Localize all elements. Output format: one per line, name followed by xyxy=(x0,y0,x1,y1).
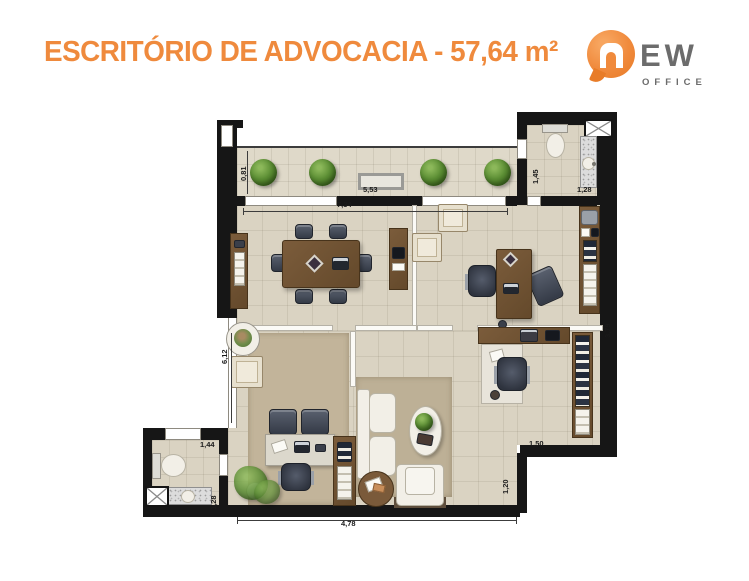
window-balcony-left xyxy=(245,196,337,206)
wall-balcony-a xyxy=(237,196,245,206)
window-left-niche xyxy=(221,125,233,147)
cabinet-screen xyxy=(392,247,405,259)
guest-chair xyxy=(301,409,329,435)
toilet-tank xyxy=(152,453,161,479)
balcony-plant-1 xyxy=(250,159,277,186)
cabinet-box xyxy=(581,228,590,237)
sideboard-item xyxy=(234,240,245,248)
dim-balcony-width: 5,53 xyxy=(363,186,378,194)
sofa-cushion xyxy=(369,393,396,433)
guest-chair xyxy=(269,409,297,435)
wall-wc2-right-a xyxy=(219,428,228,454)
dim-tick xyxy=(237,517,238,524)
armchair-beige xyxy=(438,204,468,232)
wall-right-step xyxy=(517,453,527,513)
phone xyxy=(315,444,326,452)
wall-wc-left-b xyxy=(517,159,527,205)
conference-chair xyxy=(329,289,347,304)
dim-left-height: 6,12 xyxy=(221,349,229,364)
dim-tick xyxy=(243,208,244,215)
door-wc-top-exit xyxy=(527,196,541,206)
dim-line-734 xyxy=(243,211,508,212)
dim-right-height: 3,79 xyxy=(604,323,612,338)
cabinet-files-dark xyxy=(583,240,597,262)
conference-chair xyxy=(295,224,313,239)
desk-monitor xyxy=(545,330,560,341)
cabinet-files-white xyxy=(583,264,597,306)
wall-wc2-right-b xyxy=(219,476,228,517)
lounge-armchair-seat xyxy=(405,467,435,495)
toilet-bowl xyxy=(546,133,565,158)
logo-ew-text: EW xyxy=(640,37,698,74)
cabinet-trays xyxy=(337,466,352,500)
faucet xyxy=(592,162,596,166)
partition-horizontal-b xyxy=(355,325,417,331)
sideboard-trays xyxy=(234,252,245,286)
laptop xyxy=(332,257,349,270)
shower-x-box xyxy=(145,486,169,507)
toilet-bowl xyxy=(161,454,186,477)
dim-line-612 xyxy=(231,333,232,423)
door-wc2 xyxy=(219,454,228,476)
cabinet-files xyxy=(337,442,352,462)
table-plant xyxy=(415,413,433,431)
dim-balcony-depth: 0,81 xyxy=(240,166,248,181)
armchair-beige xyxy=(231,356,263,388)
wall-bottom xyxy=(143,505,520,517)
dim-tick xyxy=(507,208,508,215)
wall-wc2-top-a xyxy=(143,428,165,440)
armchair-beige xyxy=(412,233,442,262)
balcony-plant-3 xyxy=(420,159,447,186)
laptop xyxy=(503,283,519,294)
wall-balcony-c xyxy=(506,196,517,206)
bookshelf-trays xyxy=(575,409,590,435)
partition-vertical xyxy=(412,205,417,329)
flower-centerpiece xyxy=(234,329,252,347)
window-wc2 xyxy=(165,428,201,440)
sink xyxy=(181,490,195,503)
dim-tick xyxy=(516,517,517,524)
partition-horizontal-c xyxy=(417,325,453,331)
cabinet-item xyxy=(392,263,405,271)
balcony-edge xyxy=(237,146,517,148)
cabinet-box-dark xyxy=(591,228,599,237)
logo-office-text: OFFICE xyxy=(642,77,707,88)
toilet-tank xyxy=(542,124,568,133)
sofa-cushion xyxy=(369,436,396,476)
office-chair xyxy=(281,463,311,491)
dim-wc-bottom-height: 1,28 xyxy=(210,495,218,510)
office-chair xyxy=(468,265,496,297)
partition-lounge-left xyxy=(350,331,356,387)
dim-bottom-width: 4,78 xyxy=(341,520,356,528)
dim-interior-width: 7,34 xyxy=(337,201,352,209)
logo-n-arch xyxy=(606,52,616,68)
wall-wc-left-a xyxy=(517,125,527,139)
office-chair xyxy=(497,357,527,391)
wall-wc-bottom xyxy=(541,196,597,206)
conference-chair xyxy=(329,224,347,239)
printer xyxy=(520,329,538,342)
desk-items xyxy=(294,441,310,453)
conference-cabinet xyxy=(389,228,408,290)
bookshelf-books xyxy=(575,335,590,407)
dim-wc-top-width: 1,28 xyxy=(577,186,592,194)
dim-wc-bottom-width: 1,44 xyxy=(200,441,215,449)
dim-line-478 xyxy=(237,520,517,521)
dim-wc-top-height: 1,45 xyxy=(532,169,540,184)
floor-plan-page: ESCRITÓRIO DE ADVOCACIA - 57,64 m² EW OF… xyxy=(0,0,749,581)
dim-right-step-height: 1,20 xyxy=(502,479,510,494)
balcony-plant-2 xyxy=(309,159,336,186)
conference-chair xyxy=(295,289,313,304)
dim-right-office-width: 1,50 xyxy=(529,440,544,448)
printer xyxy=(581,210,598,225)
balcony-plant-4 xyxy=(484,159,511,186)
trash-bin xyxy=(490,390,500,400)
page-title: ESCRITÓRIO DE ADVOCACIA - 57,64 m² xyxy=(44,36,558,69)
door-wc-top xyxy=(517,139,527,159)
